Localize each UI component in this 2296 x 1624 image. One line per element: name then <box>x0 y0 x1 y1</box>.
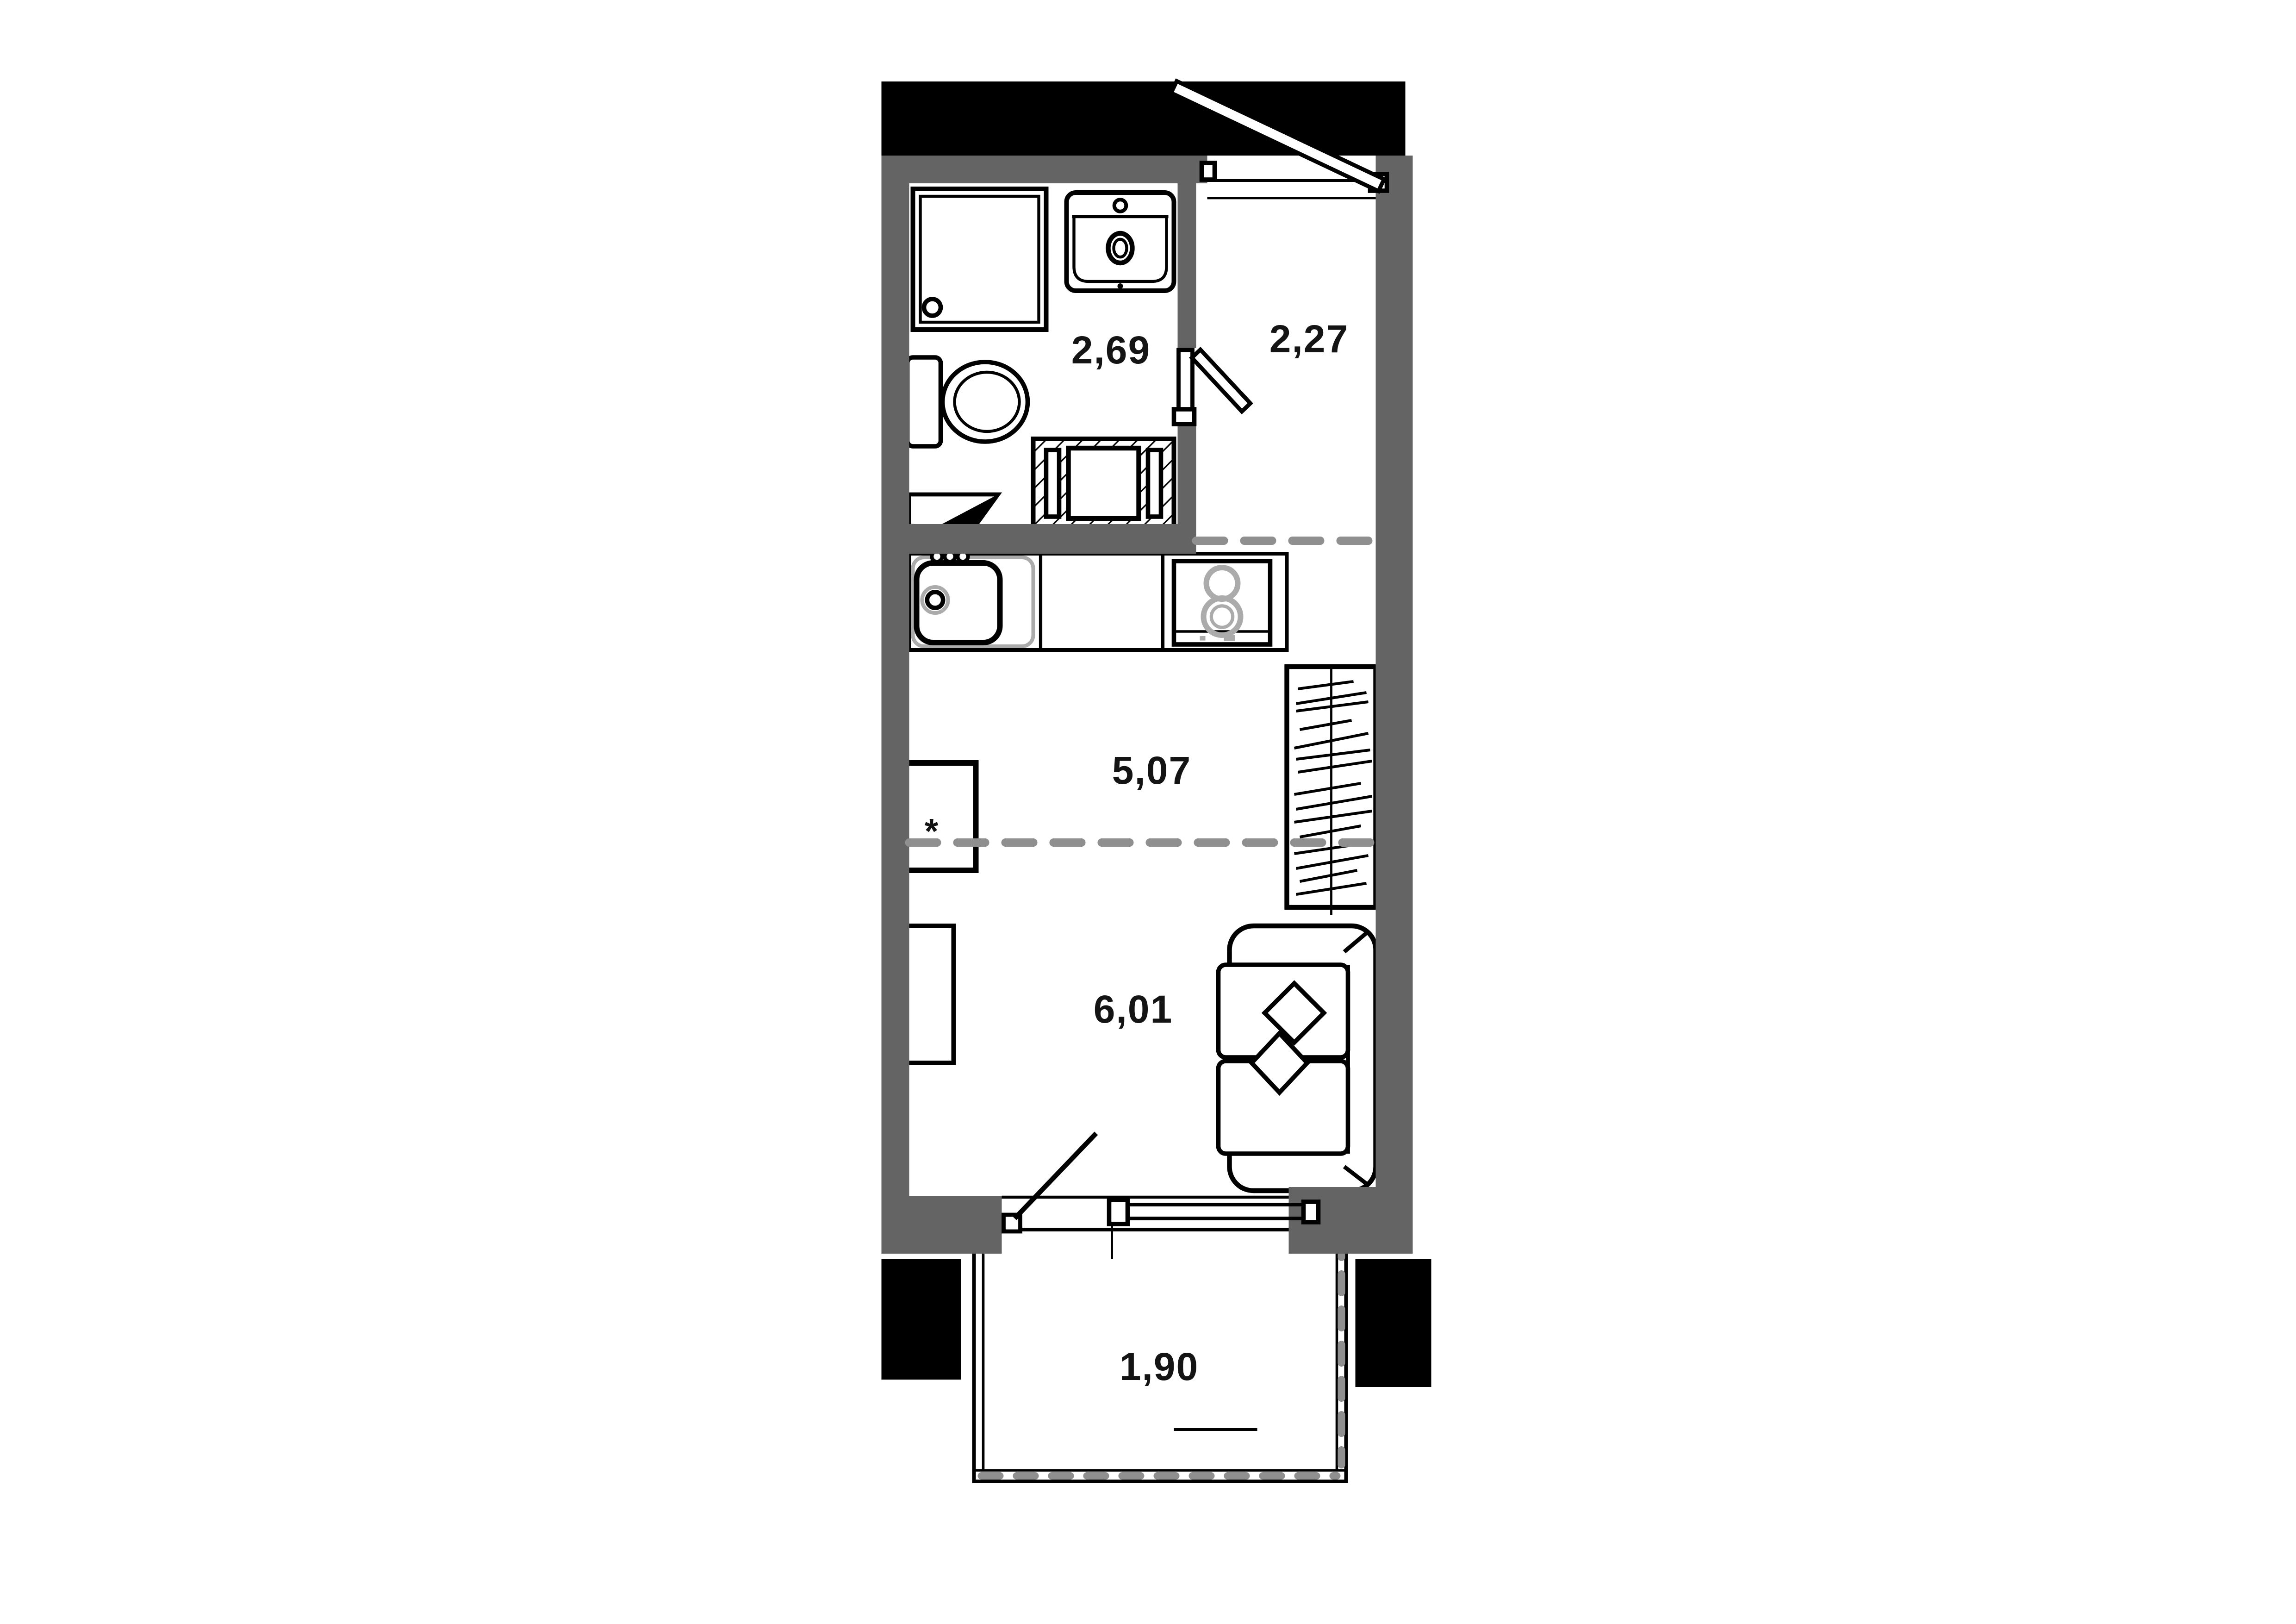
sofa-icon <box>1219 926 1376 1191</box>
wall-bathroom-bottom <box>882 524 1196 554</box>
washing-machine-icon <box>1033 439 1174 528</box>
hallway-area-label: 2,27 <box>1269 317 1349 361</box>
floor-plan: 2,69 2,27 5,07 6,01 1,90 * <box>0 0 2296 1624</box>
balcony-area-label: 1,90 <box>1120 1345 1199 1388</box>
wall-top-bathroom <box>882 156 1207 183</box>
kitchen-table-marker: * <box>925 812 939 851</box>
living-area-label: 6,01 <box>1094 987 1173 1031</box>
exterior-mass-balcony-left <box>882 1259 961 1380</box>
page: 2,69 2,27 5,07 6,01 1,90 * <box>0 0 2296 1624</box>
kitchen-area-label: 5,07 <box>1112 749 1192 792</box>
wall-right <box>1376 156 1413 1196</box>
exterior-mass-balcony-right <box>1356 1259 1431 1387</box>
wall-bottom-left-block <box>882 1196 1002 1254</box>
exterior-mass-top-band <box>882 81 1406 156</box>
wall-bath-divider-upper <box>1178 183 1196 348</box>
wall-bath-divider-lower <box>1178 420 1196 528</box>
wall-left <box>882 156 909 1254</box>
bathroom-area-label: 2,69 <box>1071 328 1151 372</box>
